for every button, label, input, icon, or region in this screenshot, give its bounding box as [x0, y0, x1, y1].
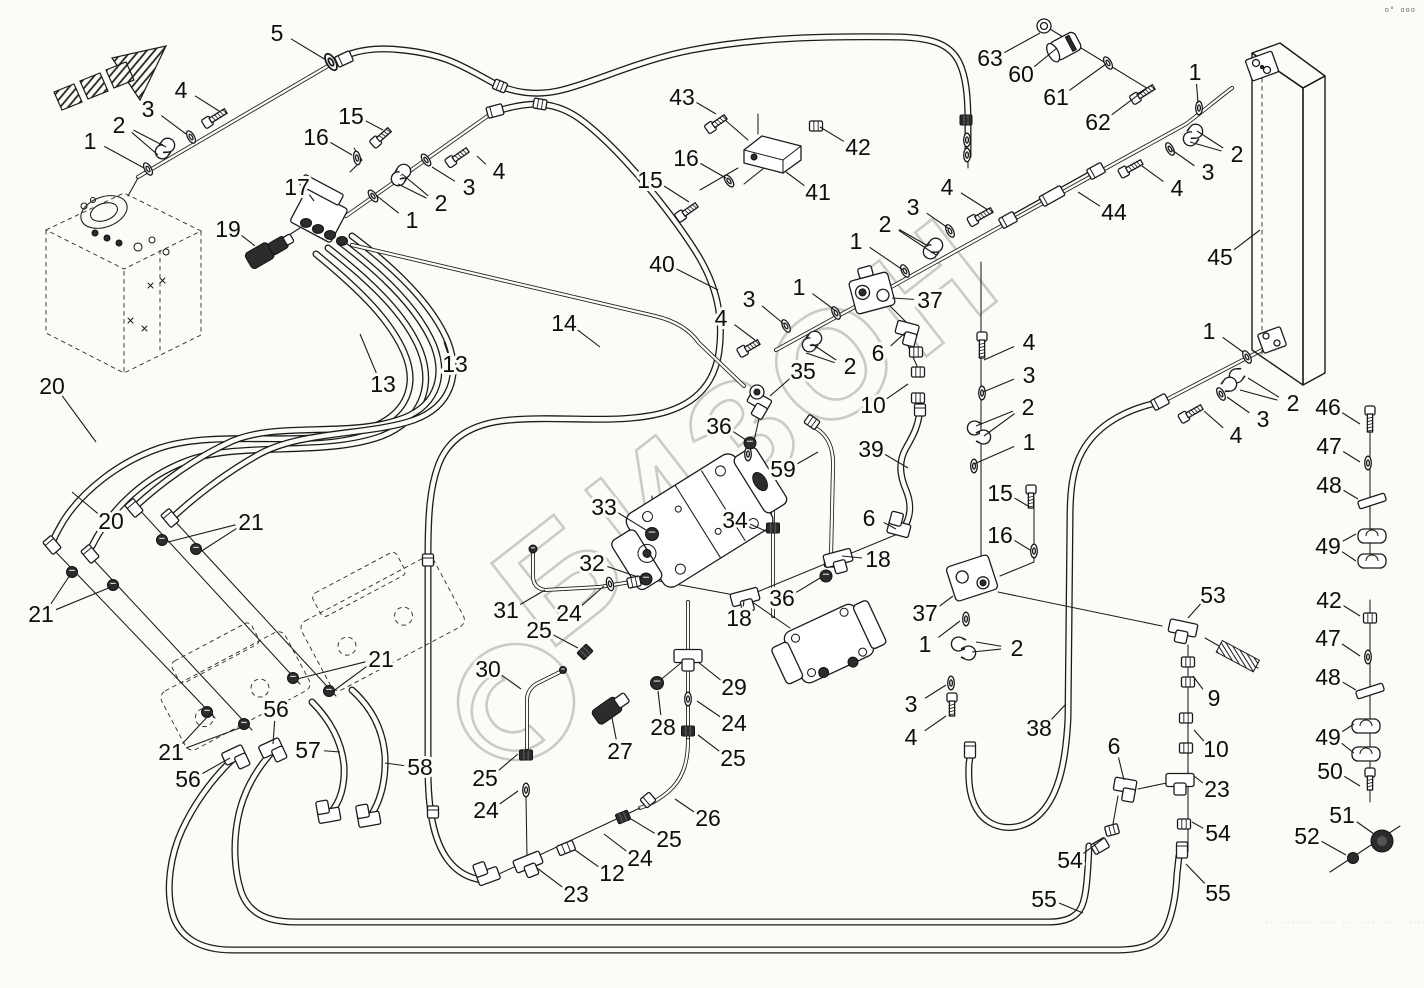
part-label-1: 1	[793, 274, 806, 300]
part-label-4: 4	[1023, 329, 1036, 355]
part-label-1: 1	[1023, 429, 1036, 455]
part-label-38: 38	[1026, 715, 1052, 741]
part-label-15: 15	[987, 480, 1013, 506]
part-label-39: 39	[858, 436, 884, 462]
part-label-31: 31	[493, 597, 519, 623]
part-label-35: 35	[790, 358, 816, 384]
part-label-5: 5	[271, 20, 284, 46]
part-label-21: 21	[158, 739, 184, 765]
part-label-59: 59	[770, 456, 796, 482]
part-label-13: 13	[442, 351, 468, 377]
part-label-25: 25	[526, 617, 552, 643]
part-label-19: 19	[215, 216, 241, 242]
part-label-1: 1	[1189, 59, 1202, 85]
part-label-45: 45	[1207, 244, 1233, 270]
part-label-25: 25	[656, 826, 682, 852]
part-label-36: 36	[706, 413, 732, 439]
reservoir-tank	[46, 178, 201, 373]
part-label-54: 54	[1205, 820, 1231, 846]
oil-cooler	[1245, 43, 1325, 385]
part-label-3: 3	[907, 194, 920, 220]
part-label-2: 2	[1231, 141, 1244, 167]
part-label-40: 40	[649, 251, 675, 277]
part-label-21: 21	[238, 509, 264, 535]
part-label-4: 4	[905, 724, 918, 750]
part-label-56: 56	[175, 766, 201, 792]
part-label-57: 57	[295, 737, 321, 763]
breather-cap-60	[1037, 19, 1083, 64]
part-label-47: 47	[1316, 433, 1342, 459]
page-mark-bottom-right: ··· ········· ···· ··· ···· ··· ·· ···· …	[1262, 919, 1424, 927]
part-label-3: 3	[1202, 159, 1215, 185]
hydraulic-piping-diagram: БИЗОН	[0, 0, 1424, 988]
part-label-41: 41	[805, 179, 831, 205]
part-label-4: 4	[941, 174, 954, 200]
part-label-21: 21	[28, 601, 54, 627]
sensor-27	[591, 690, 632, 726]
part-label-27: 27	[607, 738, 633, 764]
junction-block-37-b	[946, 554, 999, 602]
part-label-42: 42	[845, 134, 871, 160]
part-label-49: 49	[1315, 724, 1341, 750]
part-label-1: 1	[1203, 318, 1216, 344]
part-label-53: 53	[1200, 582, 1226, 608]
part-label-18: 18	[726, 605, 752, 631]
part-label-1: 1	[406, 207, 419, 233]
part-label-10: 10	[1203, 736, 1229, 762]
part-label-51: 51	[1329, 802, 1355, 828]
part-label-15: 15	[338, 103, 364, 129]
part-label-50: 50	[1317, 758, 1343, 784]
part-label-2: 2	[879, 211, 892, 237]
part-label-6: 6	[872, 340, 885, 366]
part-label-33: 33	[591, 494, 617, 520]
part-label-21: 21	[368, 646, 394, 672]
block-41	[744, 136, 801, 173]
part-label-23: 23	[563, 881, 589, 907]
part-label-3: 3	[1023, 362, 1036, 388]
part-label-17: 17	[284, 174, 310, 200]
part-label-14: 14	[551, 310, 577, 336]
part-label-61: 61	[1043, 84, 1069, 110]
plug-hatched	[1216, 641, 1259, 672]
part-label-2: 2	[1011, 635, 1024, 661]
part-label-2: 2	[435, 190, 448, 216]
part-label-16: 16	[673, 145, 699, 171]
part-label-26: 26	[695, 805, 721, 831]
part-label-1: 1	[919, 631, 932, 657]
part-label-3: 3	[463, 174, 476, 200]
hose-20-a	[52, 254, 410, 548]
part-label-62: 62	[1085, 109, 1111, 135]
hose-38	[969, 404, 1152, 828]
part-label-44: 44	[1101, 199, 1127, 225]
part-label-10: 10	[860, 392, 886, 418]
part-label-25: 25	[472, 765, 498, 791]
part-label-54: 54	[1057, 847, 1083, 873]
part-label-2: 2	[113, 112, 126, 138]
part-label-6: 6	[1108, 733, 1121, 759]
part-label-37: 37	[912, 600, 938, 626]
part-label-48: 48	[1315, 664, 1341, 690]
part-label-18: 18	[865, 546, 891, 572]
part-label-3: 3	[743, 286, 756, 312]
part-label-47: 47	[1315, 625, 1341, 651]
pipe-30	[527, 672, 560, 748]
part-label-1: 1	[84, 128, 97, 154]
part-label-20: 20	[98, 508, 124, 534]
part-label-52: 52	[1294, 823, 1320, 849]
part-label-3: 3	[142, 96, 155, 122]
part-label-4: 4	[493, 158, 506, 184]
part-label-2: 2	[844, 353, 857, 379]
part-label-46: 46	[1315, 394, 1341, 420]
part-label-4: 4	[1230, 422, 1243, 448]
part-label-9: 9	[1208, 685, 1221, 711]
part-label-32: 32	[579, 550, 605, 576]
part-label-30: 30	[475, 656, 501, 682]
part-label-3: 3	[905, 691, 918, 717]
part-label-4: 4	[1171, 175, 1184, 201]
part-label-34: 34	[722, 507, 748, 533]
part-label-55: 55	[1205, 880, 1231, 906]
coupler-19	[244, 229, 296, 270]
part-label-28: 28	[650, 714, 676, 740]
part-label-24: 24	[627, 845, 653, 871]
part-label-16: 16	[303, 124, 329, 150]
page-mark-top-right: o° ooo	[1385, 6, 1416, 14]
part-label-24: 24	[473, 797, 499, 823]
part-label-2: 2	[1022, 394, 1035, 420]
part-label-29: 29	[721, 674, 747, 700]
part-label-23: 23	[1204, 776, 1230, 802]
plug-52	[1348, 853, 1359, 864]
part-label-4: 4	[715, 305, 728, 331]
part-label-13: 13	[370, 371, 396, 397]
part-label-63: 63	[977, 45, 1003, 71]
part-label-1: 1	[850, 228, 863, 254]
tank-pump-unit	[76, 178, 169, 331]
part-label-16: 16	[987, 522, 1013, 548]
part-label-3: 3	[1257, 406, 1270, 432]
part-label-25: 25	[720, 745, 746, 771]
part-label-60: 60	[1008, 61, 1034, 87]
part-label-6: 6	[863, 505, 876, 531]
part-label-15: 15	[637, 167, 663, 193]
part-label-37: 37	[917, 287, 943, 313]
part-label-48: 48	[1316, 472, 1342, 498]
part-label-2: 2	[1287, 390, 1300, 416]
part-label-36: 36	[769, 585, 795, 611]
part-label-20: 20	[39, 373, 65, 399]
part-label-58: 58	[407, 754, 433, 780]
part-label-56: 56	[263, 696, 289, 722]
parts-diagram-page: БИЗОН	[0, 0, 1424, 988]
part-label-4: 4	[175, 77, 188, 103]
part-label-24: 24	[556, 600, 582, 626]
part-label-43: 43	[669, 84, 695, 110]
part-label-49: 49	[1315, 533, 1341, 559]
part-label-24: 24	[721, 710, 747, 736]
part-label-42: 42	[1316, 587, 1342, 613]
part-label-12: 12	[599, 860, 625, 886]
part-label-55: 55	[1031, 886, 1057, 912]
